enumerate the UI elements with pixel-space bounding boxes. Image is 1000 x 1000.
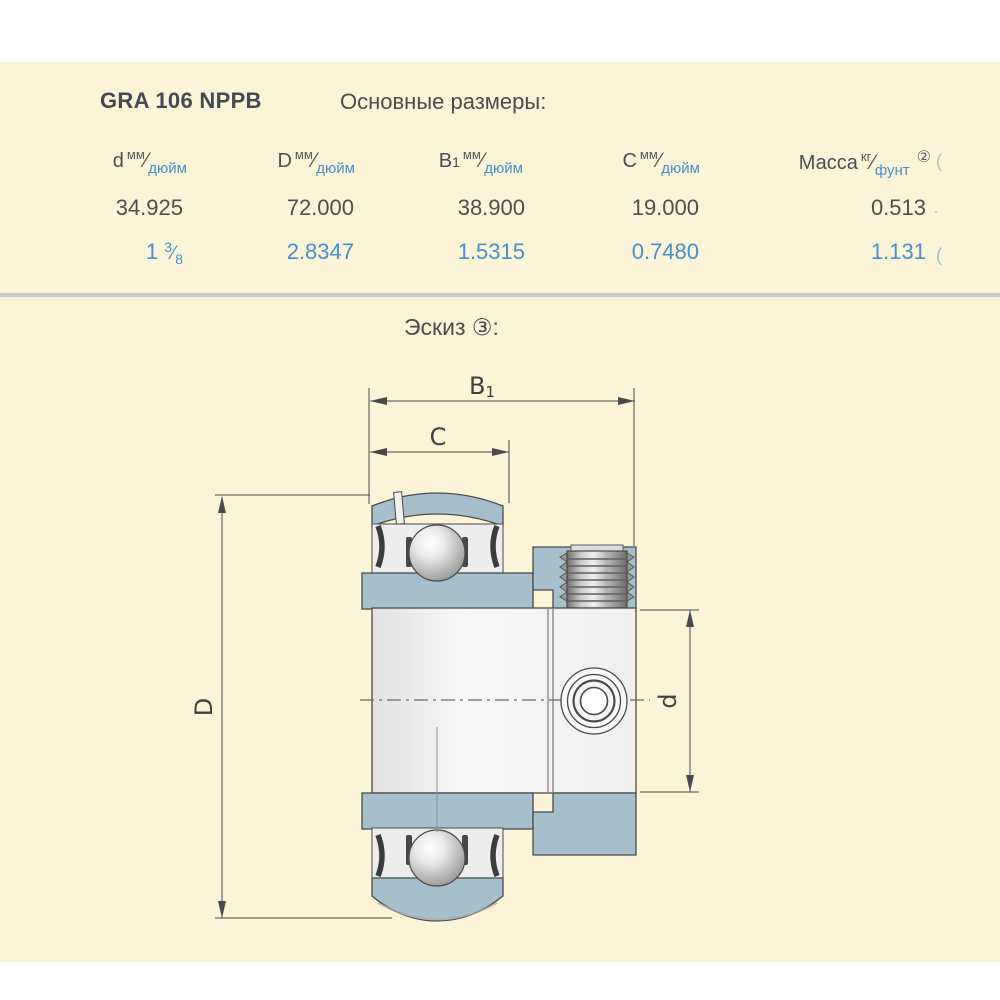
unit-inch: дюйм	[148, 160, 187, 177]
value-mass-kg: 0.513	[871, 195, 926, 221]
set-screw-threads	[568, 559, 626, 601]
col-header-B1: B1мм⁄дюйм	[439, 147, 523, 177]
arrow-icon	[370, 397, 387, 405]
unit-inch: дюйм	[661, 160, 700, 177]
sketch-title: Эскиз ③:	[404, 314, 499, 341]
unit-inch: дюйм	[316, 160, 355, 177]
ball-top	[409, 525, 465, 581]
datasheet-page: GRA 106 NPPB Основные размеры: dмм⁄дюйм …	[0, 0, 1000, 1000]
unit-mm: мм	[463, 147, 481, 162]
value-D-inch: 2.8347	[287, 239, 354, 265]
label-C: C	[430, 423, 447, 451]
clipped-glyph: (	[936, 245, 942, 266]
col-symbol: C	[622, 150, 636, 172]
col-symbol: d	[113, 150, 124, 172]
footnote-2-icon: ②	[917, 149, 931, 166]
value-C-mm: 19.000	[632, 195, 699, 221]
hole-bore-circle	[581, 688, 608, 715]
ball-bottom	[409, 830, 465, 886]
section-divider	[0, 293, 1000, 297]
bearing-bottom-section	[362, 793, 636, 921]
arrow-icon	[492, 448, 509, 456]
clipped-glyph: ·	[933, 201, 939, 222]
col-symbol: D	[277, 150, 291, 172]
clipped-glyph: (	[936, 151, 942, 172]
arrow-icon	[370, 448, 387, 456]
label-d: d	[654, 693, 682, 708]
col-header-mass: Массакг⁄фунт②	[799, 147, 931, 179]
arrow-icon	[218, 901, 226, 918]
set-screw	[560, 545, 634, 608]
unit-mm: мм	[640, 147, 658, 162]
col-header-d: dмм⁄дюйм	[113, 147, 187, 177]
arrow-icon	[686, 610, 694, 627]
value-d-inch: 1 3⁄8	[146, 239, 183, 267]
value-mass-lb: 1.131	[871, 239, 926, 265]
section-title: Основные размеры:	[340, 89, 546, 115]
grub-screw-hole	[561, 668, 627, 734]
outer-ring-top	[372, 493, 503, 526]
mass-label: Масса	[799, 152, 858, 174]
unit-inch: дюйм	[484, 160, 523, 177]
value-C-inch: 0.7480	[632, 239, 699, 265]
bearing-drawing: B1 C D d	[0, 350, 1000, 962]
col-header-D: Dмм⁄дюйм	[277, 147, 355, 177]
arrow-icon	[618, 397, 635, 405]
label-D: D	[190, 698, 218, 716]
label-B1: B1	[469, 372, 495, 401]
value-d-mm: 34.925	[116, 195, 183, 221]
col-header-C: Cмм⁄дюйм	[622, 147, 700, 177]
unit-kg: кг	[861, 149, 871, 164]
unit-mm: мм	[295, 147, 313, 162]
locking-collar-bottom	[533, 793, 636, 855]
unit-mm: мм	[127, 147, 145, 162]
col-symbol: B	[439, 150, 452, 172]
inner-ring-bottom-band	[362, 793, 533, 829]
value-D-mm: 72.000	[287, 195, 354, 221]
unit-lb: фунт	[875, 162, 910, 179]
value-B1-inch: 1.5315	[458, 239, 525, 265]
value-B1-mm: 38.900	[458, 195, 525, 221]
model-code: GRA 106 NPPB	[100, 88, 262, 114]
arrow-icon	[686, 775, 694, 792]
arrow-icon	[218, 496, 226, 513]
